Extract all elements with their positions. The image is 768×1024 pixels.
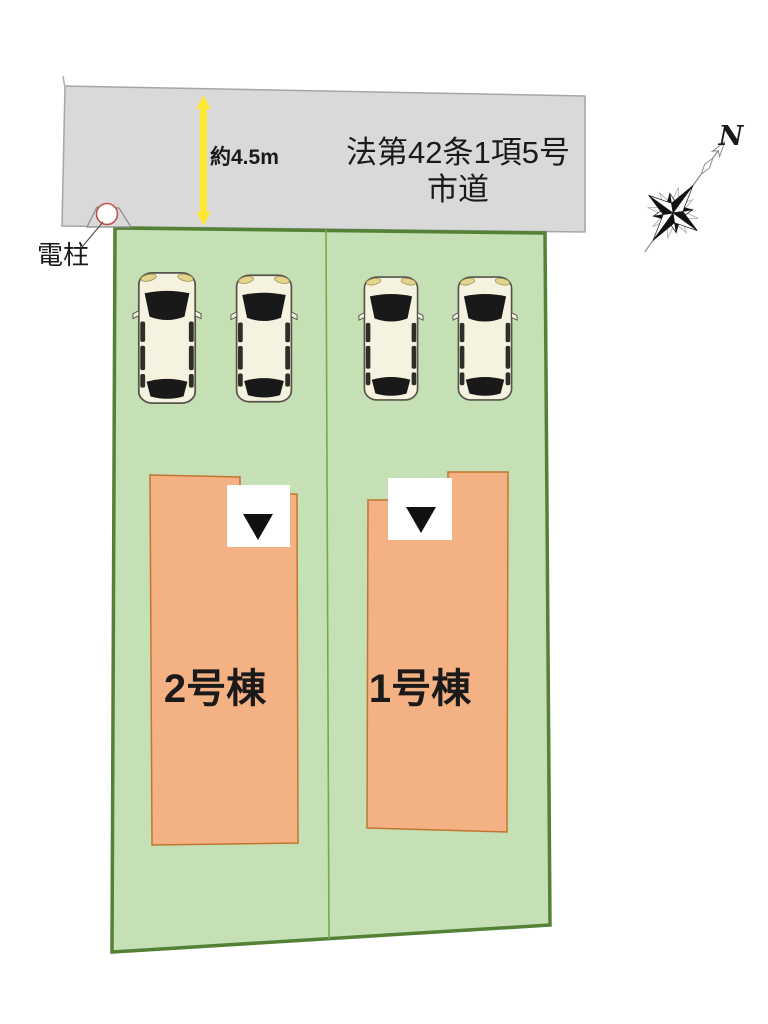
utility-pole-marker: [97, 204, 118, 225]
compass-north-label: N: [718, 121, 745, 152]
road-width-label: 約4.5m: [210, 145, 279, 169]
car-2: [231, 275, 297, 402]
road-type-label: 市道: [427, 172, 489, 207]
car-3: [359, 277, 423, 400]
site-plan-page: 電柱 法第42条1項5号 市道 約4.5m 2号棟 1号棟: [0, 0, 768, 1024]
road-law-label: 法第42条1項5号: [346, 135, 570, 170]
building-2-label: 2号棟: [164, 667, 267, 711]
car-4: [453, 277, 517, 400]
compass-rose: N: [629, 121, 745, 258]
car-1: [133, 273, 201, 403]
site-plan-canvas: 電柱 法第42条1項5号 市道 約4.5m 2号棟 1号棟: [0, 0, 768, 1024]
compass-star: [629, 168, 718, 258]
building-1-label: 1号棟: [369, 667, 472, 711]
road-corner-tick: [63, 76, 65, 88]
pole-label: 電柱: [37, 240, 89, 270]
